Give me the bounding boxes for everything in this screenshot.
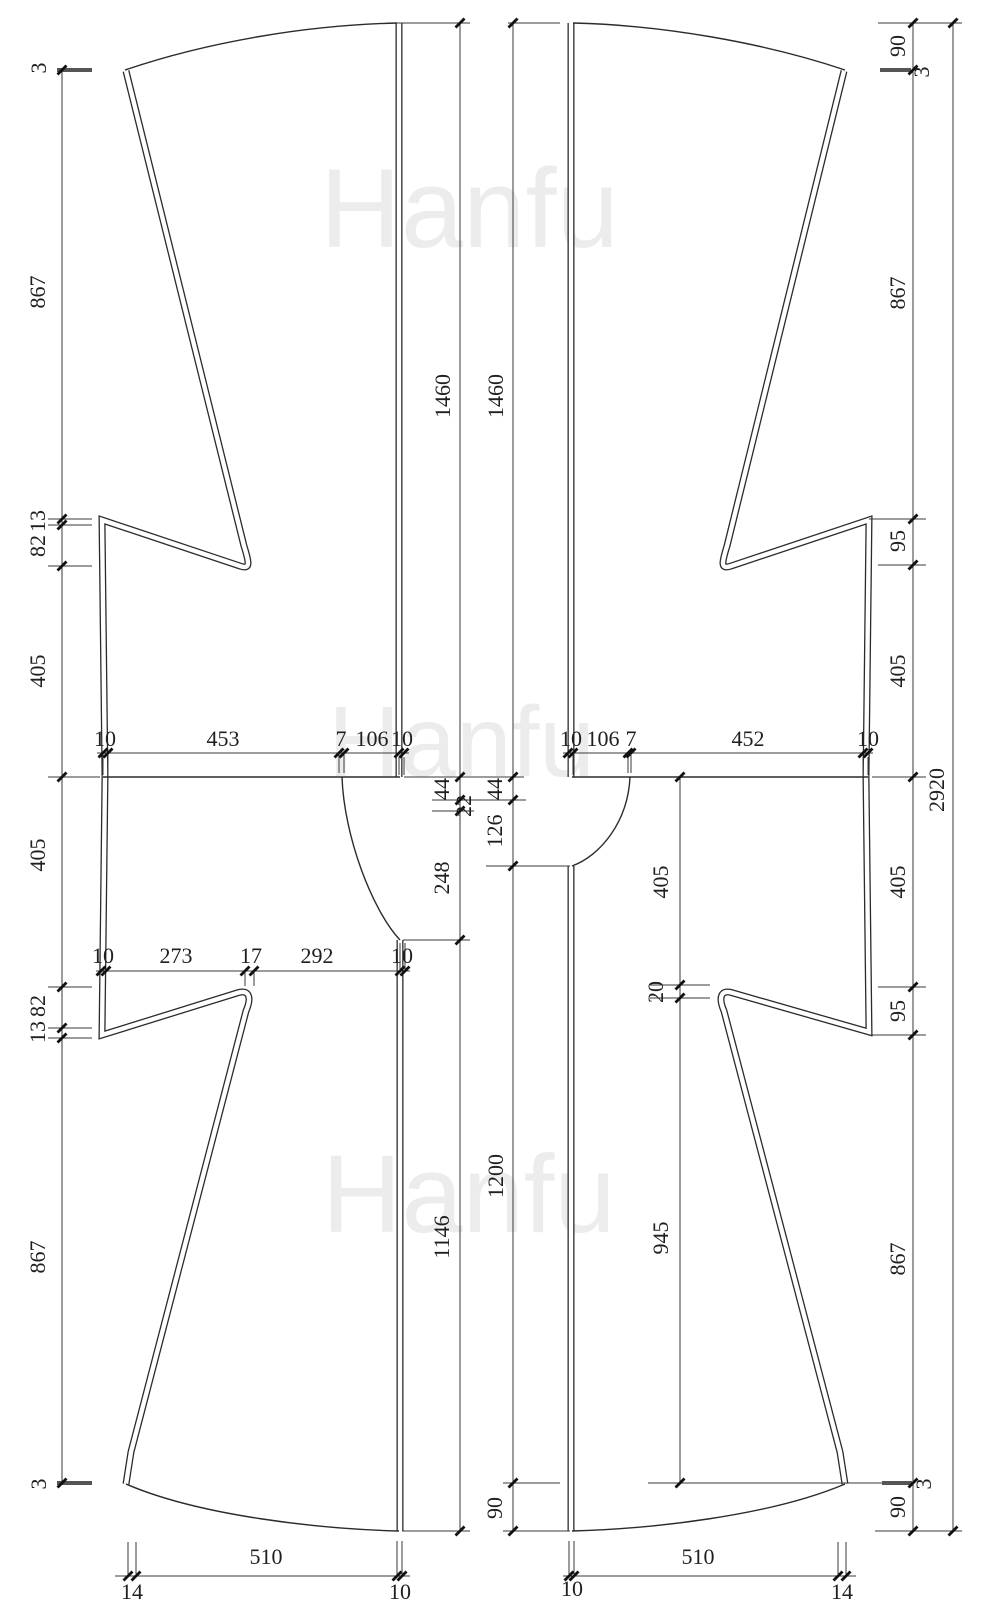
dim-label: 126: [482, 815, 507, 848]
dim-label: 405: [648, 866, 673, 899]
dim-label: 1460: [483, 374, 508, 418]
dim-label: 405: [25, 839, 50, 872]
dim-label: 867: [885, 277, 910, 310]
dim-label: 510: [250, 1544, 283, 1569]
dim-label: 20: [643, 981, 668, 1003]
dim-label: 10: [389, 1579, 411, 1604]
dim-label: 248: [429, 862, 454, 895]
dim-label: 10: [857, 726, 879, 751]
dim-label: 44: [482, 778, 507, 800]
dim-label: 867: [25, 1241, 50, 1274]
pattern-drawing: Hanfu Hanfu Hanfu 3 867 13: [0, 0, 1000, 1609]
dim-label: 13: [25, 510, 50, 532]
dim-label: 90: [885, 35, 910, 57]
dim-label: 273: [160, 943, 193, 968]
dim-label: 10: [94, 726, 116, 751]
dim-label: 945: [648, 1222, 673, 1255]
dim-label: 7: [336, 726, 347, 751]
dim-label: 13: [25, 1021, 50, 1043]
dim-label: 292: [301, 943, 334, 968]
dim-label: 3: [909, 67, 934, 78]
dim-label: 1200: [483, 1154, 508, 1198]
dim-label: 82: [25, 535, 50, 557]
dim-label: 453: [207, 726, 240, 751]
dim-label: 95: [885, 1000, 910, 1022]
dim-label: 3: [26, 63, 51, 74]
dim-label: 95: [885, 530, 910, 552]
dim-label: 7: [626, 726, 637, 751]
dim-label: 405: [25, 655, 50, 688]
dim-label: 405: [885, 866, 910, 899]
dim-label: 22: [451, 795, 476, 817]
dim-label: 10: [391, 943, 413, 968]
dim-label: 405: [885, 655, 910, 688]
dim-label-total-height: 2920: [924, 768, 949, 812]
dim-label: 510: [682, 1544, 715, 1569]
hanfu-pattern-svg: Hanfu Hanfu Hanfu 3 867 13: [0, 0, 1000, 1609]
dim-label: 10: [391, 726, 413, 751]
dim-label: 1146: [429, 1215, 454, 1258]
dim-label: 106: [587, 726, 620, 751]
dim-label: 867: [25, 276, 50, 309]
dim-label: 17: [240, 943, 262, 968]
dim-label: 14: [831, 1579, 853, 1604]
dim-label: 3: [911, 1479, 936, 1490]
dim-label: 10: [92, 943, 114, 968]
dim-label: 14: [121, 1579, 143, 1604]
dim-label: 452: [732, 726, 765, 751]
dim-label: 82: [25, 995, 50, 1017]
dim-label: 90: [482, 1497, 507, 1519]
dim-label: 10: [560, 726, 582, 751]
dim-label: 106: [356, 726, 389, 751]
dim-label: 10: [561, 1576, 583, 1601]
dim-label: 867: [885, 1243, 910, 1276]
dim-label: 90: [885, 1496, 910, 1518]
dim-label: 1460: [430, 374, 455, 418]
dim-label: 3: [26, 1479, 51, 1490]
